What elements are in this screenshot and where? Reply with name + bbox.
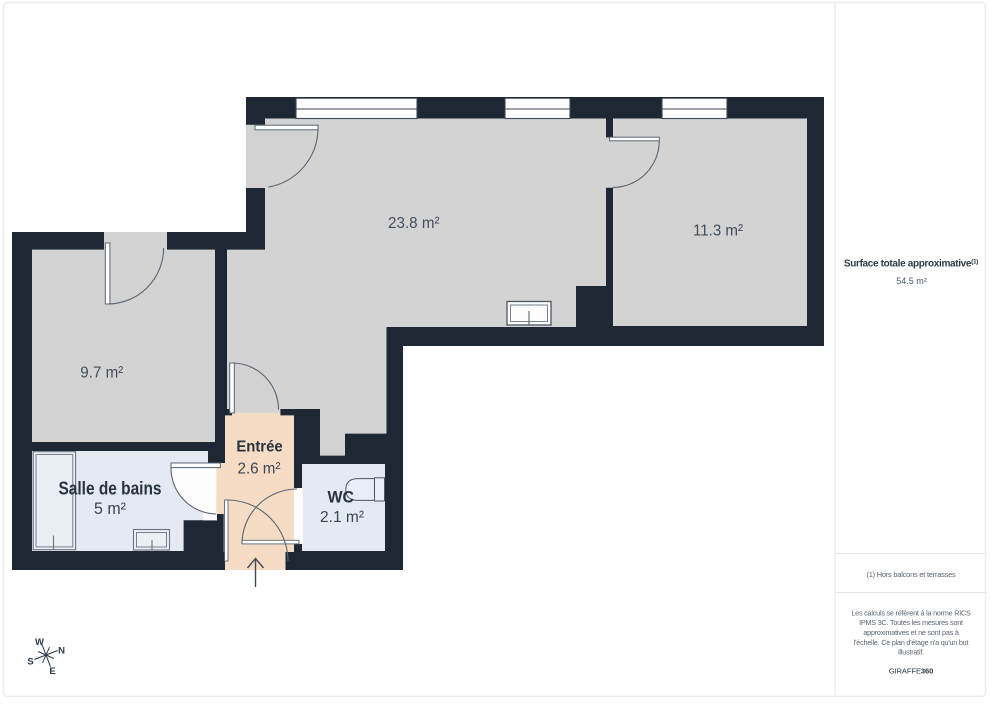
svg-text:Entrée: Entrée <box>236 439 282 456</box>
svg-text:S: S <box>27 657 33 668</box>
svg-text:9.7 m²: 9.7 m² <box>80 365 124 382</box>
svg-text:2.6 m²: 2.6 m² <box>238 461 282 478</box>
svg-text:Les calculs se réfèrent à la n: Les calculs se réfèrent à la norme RICS <box>851 608 971 617</box>
svg-text:approximatives et ne sont pas: approximatives et ne sont pas à <box>863 628 958 637</box>
svg-text:illustratif.: illustratif. <box>898 648 924 657</box>
svg-text:Salle de bains: Salle de bains <box>59 478 162 499</box>
svg-text:IPMS 3C. Toutes les mesures so: IPMS 3C. Toutes les mesures sont <box>859 618 963 627</box>
svg-text:l'échelle. Ce plan d'étage n'a: l'échelle. Ce plan d'étage n'a qu'un but <box>854 638 969 647</box>
svg-text:E: E <box>49 666 55 677</box>
svg-text:(1) Hors balcons et terrasses: (1) Hors balcons et terrasses <box>866 570 956 579</box>
svg-text:Surface totale approximative(1: Surface totale approximative(1) <box>844 259 978 270</box>
svg-text:11.3 m²: 11.3 m² <box>693 223 744 240</box>
svg-text:GIRAFFE360: GIRAFFE360 <box>889 667 934 676</box>
svg-text:54.5 m²: 54.5 m² <box>896 276 927 286</box>
svg-text:2.1 m²: 2.1 m² <box>320 509 365 526</box>
svg-text:5 m²: 5 m² <box>94 500 126 518</box>
svg-text:WC: WC <box>328 489 355 507</box>
svg-text:23.8 m²: 23.8 m² <box>388 215 440 232</box>
svg-text:W: W <box>35 637 44 648</box>
svg-text:N: N <box>58 646 65 657</box>
